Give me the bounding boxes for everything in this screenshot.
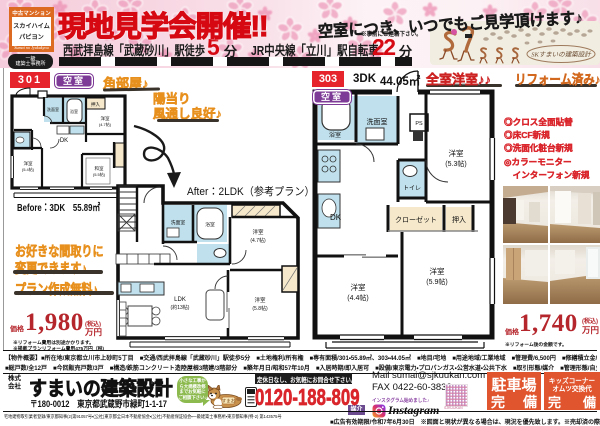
svg-text:(5.3帖): (5.3帖) [445,159,466,168]
svg-text:洋室: 洋室 [254,296,266,304]
svg-text:洋室: 洋室 [24,160,33,167]
svg-text:(5.4帖): (5.4帖) [22,166,35,172]
svg-text:(4.4帖): (4.4帖) [347,293,368,302]
svg-text:浴室: 浴室 [70,108,78,114]
svg-text:(4.7帖): (4.7帖) [250,237,266,244]
svg-text:(5.9帖): (5.9帖) [426,277,447,286]
svg-text:クローゼット: クローゼット [395,215,437,224]
svg-text:洗面室: 洗面室 [171,219,186,226]
svg-text:押入: 押入 [452,215,466,224]
svg-text:(4.7帖): (4.7帖) [99,121,112,127]
svg-text:トイレ: トイレ [403,186,421,192]
svg-text:DK: DK [60,138,68,144]
svg-text:洗面室: 洗面室 [47,106,59,112]
svg-text:洋室: 洋室 [351,282,366,292]
svg-text:すまお: すまお [222,398,236,405]
svg-text:SKすまいの建築設計: SKすまいの建築設計 [531,51,592,59]
svg-text:洗面室: 洗面室 [367,117,388,126]
svg-text:(約13帖): (約13帖) [171,304,190,311]
svg-text:(5.8帖): (5.8帖) [252,305,268,312]
svg-text:PS: PS [415,121,423,127]
svg-text:DK: DK [330,213,342,222]
svg-text:洋室: 洋室 [252,228,264,236]
svg-text:浴室: 浴室 [329,131,341,139]
svg-text:(5.5帖): (5.5帖) [93,171,106,177]
svg-text:LDK: LDK [174,297,186,303]
svg-text:押入: 押入 [91,101,100,108]
svg-text:和室: 和室 [95,165,104,172]
svg-text:洋室: 洋室 [101,115,110,122]
svg-text:洋室: 洋室 [430,266,445,276]
svg-text:浴室: 浴室 [205,221,215,228]
svg-text:洋室: 洋室 [449,148,464,158]
